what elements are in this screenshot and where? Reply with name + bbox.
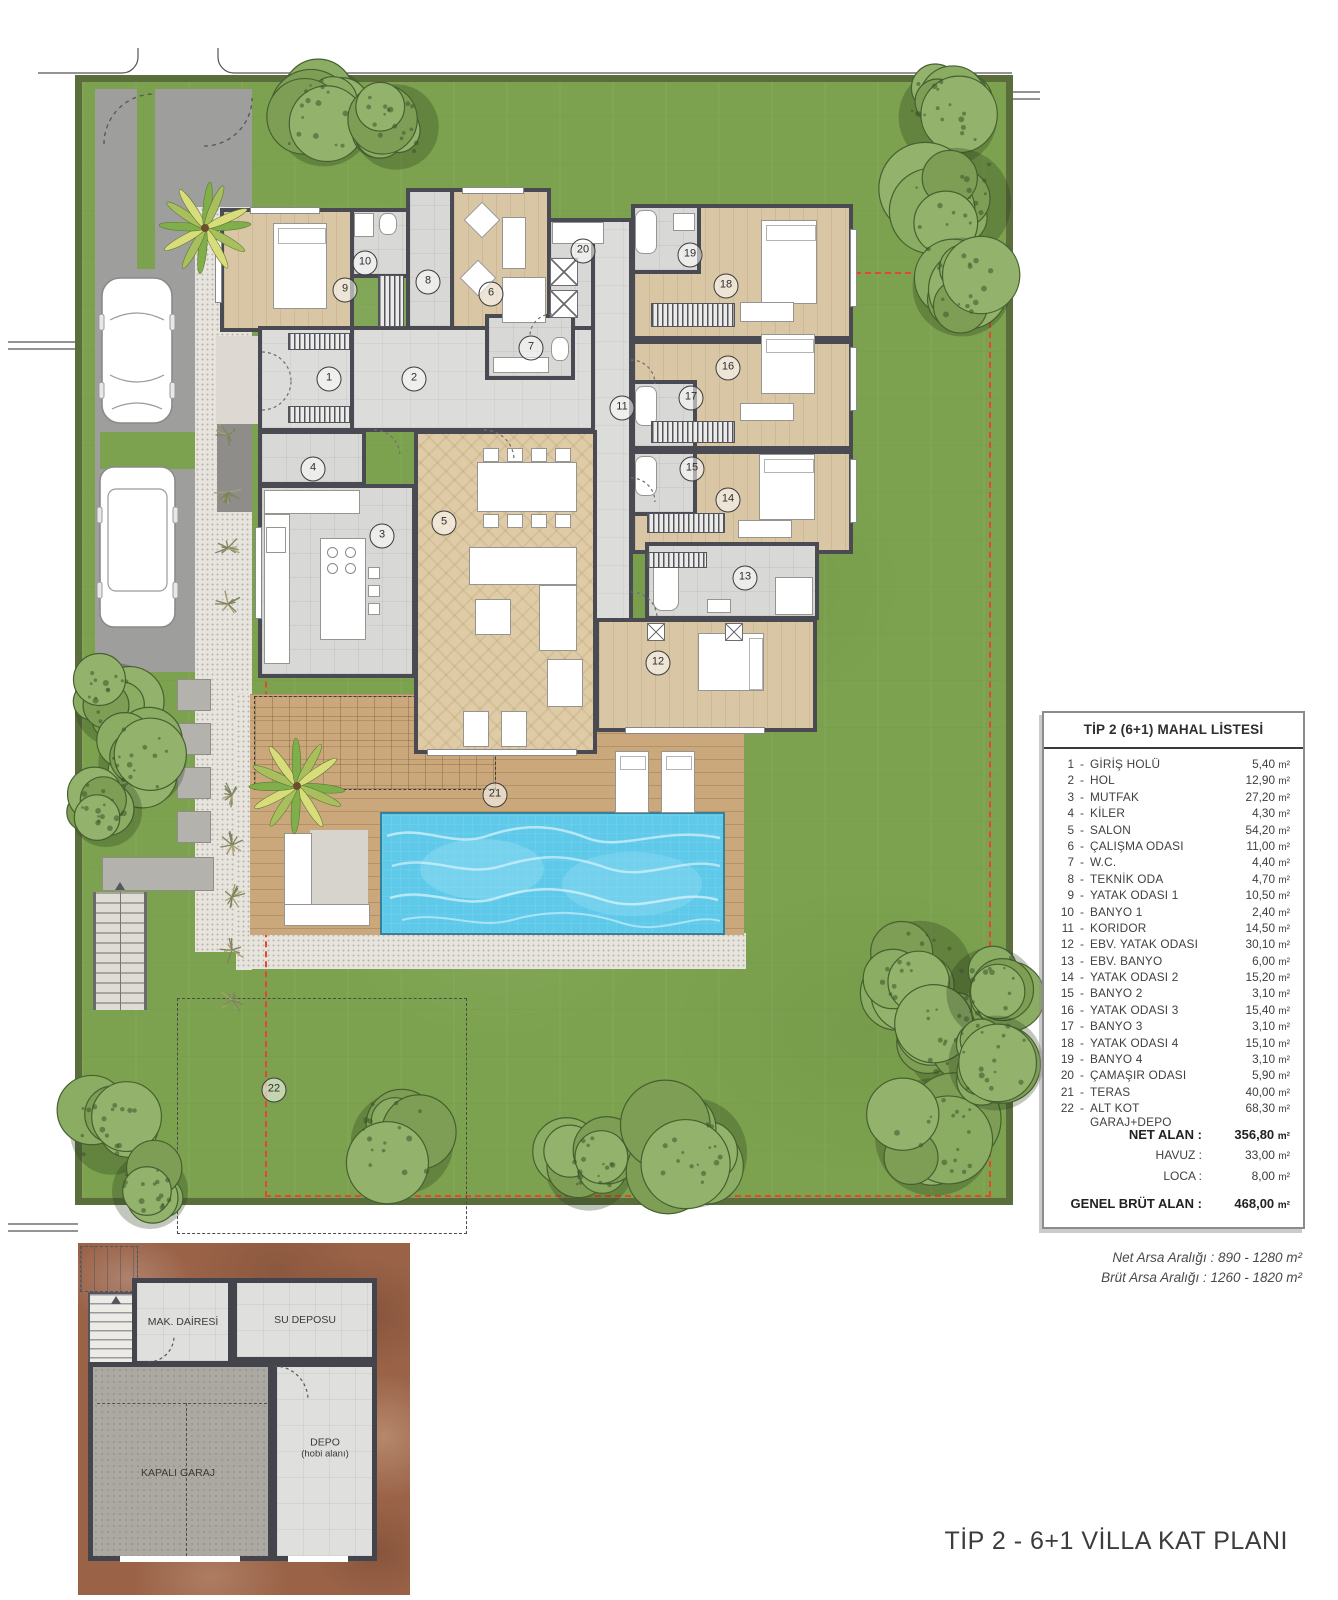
washer <box>550 258 578 286</box>
room-name: HOL <box>1090 773 1220 787</box>
room-area: 15,20 m² <box>1220 970 1303 984</box>
room-number: 4 <box>1044 806 1074 820</box>
room-area: 15,40 m² <box>1220 1003 1303 1017</box>
stepping-stone <box>177 811 211 843</box>
stool <box>368 585 380 597</box>
chair <box>555 448 571 462</box>
room-list-row: 12-EBV. YATAK ODASI30,10 m² <box>1044 937 1303 953</box>
room-badge: 1 <box>317 367 342 392</box>
gross-plot-range: Brüt Arsa Aralığı : 1260 - 1820 m² <box>990 1268 1302 1288</box>
room-badge: 14 <box>716 488 741 513</box>
dryer <box>550 290 578 318</box>
room-area: 5,90 m² <box>1220 1068 1303 1082</box>
stair-rail <box>120 892 121 1010</box>
room-name: EBV. BANYO <box>1090 954 1220 968</box>
room-name: YATAK ODASI 4 <box>1090 1036 1220 1050</box>
room-number: 2 <box>1044 773 1074 787</box>
room-list-row: 17-BANYO 33,10 m² <box>1044 1019 1303 1035</box>
room-name: GİRİŞ HOLÜ <box>1090 757 1220 771</box>
room-list-row: 5-SALON54,20 m² <box>1044 823 1303 839</box>
swimming-pool <box>380 812 725 935</box>
room-badge: 18 <box>714 274 739 299</box>
room-badge: 4 <box>301 457 326 482</box>
room-technical <box>406 188 454 330</box>
room-list-row: 16-YATAK ODASI 315,40 m² <box>1044 1003 1303 1019</box>
room-number: 6 <box>1044 839 1074 853</box>
driveway-apron <box>95 89 252 207</box>
site-plan: 12345678910111213141516171819202122 <box>75 75 1013 1205</box>
room-name: BANYO 4 <box>1090 1052 1220 1066</box>
kitchen-island <box>320 538 366 640</box>
sheet-title: TİP 2 - 6+1 VİLLA KAT PLANI <box>940 1527 1288 1556</box>
room-name: SALON <box>1090 823 1220 837</box>
room-number: 8 <box>1044 872 1074 886</box>
stair-direction-arrow <box>111 1296 121 1304</box>
sofa <box>469 547 577 585</box>
dash: - <box>1074 872 1090 886</box>
room-badge: 2 <box>402 367 427 392</box>
bathtub <box>635 210 657 254</box>
toilet <box>379 213 397 235</box>
loca-sofa <box>284 833 312 905</box>
stair-direction-arrow <box>115 882 125 890</box>
room-number: 5 <box>1044 823 1074 837</box>
room-number: 21 <box>1044 1085 1074 1099</box>
stepping-stone <box>177 679 211 711</box>
bathtub <box>635 456 657 496</box>
chair <box>507 448 523 462</box>
room-area: 54,20 m² <box>1220 823 1303 837</box>
room-number: 13 <box>1044 954 1074 968</box>
bed <box>759 454 815 520</box>
room-list-summary: NET ALAN :356,80 m²HAVUZ :33,00 m²LOCA :… <box>1044 1127 1303 1217</box>
summary-value: 33,00 m² <box>1212 1148 1303 1162</box>
entrance-porch <box>216 336 260 424</box>
storage-door-opening <box>288 1556 348 1562</box>
room-name: EBV. YATAK ODASI <box>1090 937 1220 951</box>
loca-pad <box>310 830 368 906</box>
window <box>462 187 524 194</box>
dash: - <box>1074 1068 1090 1082</box>
toilet <box>551 337 569 361</box>
dash: - <box>1074 970 1090 984</box>
room-list-row: 20-ÇAMAŞIR ODASI5,90 m² <box>1044 1068 1303 1084</box>
dash: - <box>1074 921 1090 935</box>
room-corridor <box>591 218 633 626</box>
room-area: 40,00 m² <box>1220 1085 1303 1099</box>
room-name: TERAS <box>1090 1085 1220 1099</box>
room-number: 17 <box>1044 1019 1074 1033</box>
room-number: 14 <box>1044 970 1074 984</box>
stool <box>368 567 380 579</box>
window <box>850 459 857 523</box>
underground-garage-outline <box>177 998 467 1234</box>
plot-range-notes: Net Arsa Aralığı : 890 - 1280 m² Brüt Ar… <box>990 1248 1302 1288</box>
room-area: 3,10 m² <box>1220 1052 1303 1066</box>
room-area: 5,40 m² <box>1220 757 1303 771</box>
chaise <box>547 659 583 707</box>
room-closed-garage <box>88 1362 273 1561</box>
room-area: 3,10 m² <box>1220 1019 1303 1033</box>
dash: - <box>1074 757 1090 771</box>
desk <box>740 403 794 421</box>
sink <box>707 599 731 613</box>
room-badge: 21 <box>483 783 508 808</box>
chair <box>483 514 499 528</box>
room-name: W.C. <box>1090 855 1220 869</box>
kitchen-sink <box>266 527 286 553</box>
room-badge: 16 <box>716 356 741 381</box>
room-badge: 3 <box>370 524 395 549</box>
summary-value: 8,00 m² <box>1212 1169 1303 1183</box>
label-machine-room: MAK. DAİRESİ <box>148 1316 219 1328</box>
dash: - <box>1074 790 1090 804</box>
room-number: 16 <box>1044 1003 1074 1017</box>
label-closed-garage: KAPALI GARAJ <box>141 1467 215 1479</box>
room-area: 11,00 m² <box>1220 839 1303 853</box>
window <box>215 239 222 303</box>
room-area: 27,20 m² <box>1220 790 1303 804</box>
dining-table <box>477 462 577 512</box>
room-name: KİLER <box>1090 806 1220 820</box>
window <box>427 749 577 756</box>
room-area: 15,10 m² <box>1220 1036 1303 1050</box>
room-list-row: 21-TERAS40,00 m² <box>1044 1085 1303 1101</box>
room-name: ÇALIŞMA ODASI <box>1090 839 1220 853</box>
room-list-row: 11-KORIDOR14,50 m² <box>1044 921 1303 937</box>
kitchen-counter <box>264 490 360 514</box>
driveway-green-median <box>137 89 155 269</box>
chair <box>483 448 499 462</box>
bed <box>698 633 764 691</box>
room-name: YATAK ODASI 1 <box>1090 888 1220 902</box>
wardrobe <box>651 303 735 327</box>
room-list-row: 7-W.C.4,40 m² <box>1044 855 1303 871</box>
nightstand <box>647 623 665 641</box>
room-number: 12 <box>1044 937 1074 951</box>
room-name: KORIDOR <box>1090 921 1220 935</box>
room-number: 22 <box>1044 1101 1074 1115</box>
summary-row: NET ALAN :356,80 m² <box>1044 1127 1303 1148</box>
dash: - <box>1074 1003 1090 1017</box>
desk <box>502 217 526 269</box>
room-badge: 6 <box>479 282 504 307</box>
room-list-row: 8-TEKNİK ODA4,70 m² <box>1044 872 1303 888</box>
dash: - <box>1074 905 1090 919</box>
dash: - <box>1074 937 1090 951</box>
bed <box>273 223 327 309</box>
exterior-stairs[interactable] <box>93 892 147 1010</box>
sink <box>673 213 695 231</box>
window <box>250 207 320 214</box>
room-list-row: 19-BANYO 43,10 m² <box>1044 1052 1303 1068</box>
room-list-row: 10-BANYO 12,40 m² <box>1044 905 1303 921</box>
dash: - <box>1074 773 1090 787</box>
sun-lounger <box>615 751 649 813</box>
room-number: 10 <box>1044 905 1074 919</box>
room-list-panel: TİP 2 (6+1) MAHAL LİSTESİ 1-GİRİŞ HOLÜ5,… <box>1042 711 1305 1229</box>
room-badge: 20 <box>571 239 596 264</box>
loca-sofa <box>284 904 370 926</box>
dash: - <box>1074 1019 1090 1033</box>
net-plot-range: Net Arsa Aralığı : 890 - 1280 m² <box>990 1248 1302 1268</box>
deck-chair <box>501 711 527 747</box>
summary-label: NET ALAN : <box>1044 1127 1212 1142</box>
chair <box>555 514 571 528</box>
garage-door-opening <box>120 1556 240 1562</box>
room-badge: 5 <box>432 511 457 536</box>
desk <box>740 302 794 322</box>
window <box>255 527 262 619</box>
sofa <box>539 585 577 651</box>
summary-row: HAVUZ :33,00 m² <box>1044 1148 1303 1169</box>
room-badge: 8 <box>416 270 441 295</box>
dash: - <box>1074 986 1090 1000</box>
bed <box>761 334 815 394</box>
deck-chair <box>463 711 489 747</box>
room-area: 30,10 m² <box>1220 937 1303 951</box>
chair <box>531 448 547 462</box>
room-badge: 9 <box>333 278 358 303</box>
wardrobe <box>651 421 735 443</box>
desk <box>738 520 792 538</box>
stepping-stone <box>177 767 211 799</box>
room-number: 7 <box>1044 855 1074 869</box>
room-name: BANYO 3 <box>1090 1019 1220 1033</box>
basement-plan: MAK. DAİRESİ SU DEPOSU KAPALI GARAJ DEPO… <box>78 1243 410 1595</box>
window <box>850 229 857 307</box>
dash: - <box>1074 1101 1090 1115</box>
room-badge: 7 <box>519 336 544 361</box>
summary-label: HAVUZ : <box>1044 1148 1212 1162</box>
room-list-title: TİP 2 (6+1) MAHAL LİSTESİ <box>1044 713 1303 749</box>
drawing-sheet: 12345678910111213141516171819202122 TİP … <box>0 0 1338 1600</box>
summary-row: GENEL BRÜT ALAN :468,00 m² <box>1044 1196 1303 1217</box>
room-area: 68,30 m² <box>1220 1101 1303 1115</box>
pool-water-highlights <box>382 814 727 937</box>
sun-lounger <box>661 751 695 813</box>
dash: - <box>1074 888 1090 902</box>
summary-value: 356,80 m² <box>1212 1127 1303 1142</box>
shower <box>775 577 813 615</box>
room-name: ÇAMAŞIR ODASI <box>1090 1068 1220 1082</box>
chair <box>507 514 523 528</box>
room-list-row: 2-HOL12,90 m² <box>1044 773 1303 789</box>
stool <box>368 603 380 615</box>
label-storage: DEPO (hobi alanı) <box>301 1437 349 1460</box>
room-area: 6,00 m² <box>1220 954 1303 968</box>
dash: - <box>1074 1085 1090 1099</box>
room-area: 4,70 m² <box>1220 872 1303 886</box>
shoe-cabinet <box>288 406 350 423</box>
room-number: 19 <box>1044 1052 1074 1066</box>
room-name: YATAK ODASI 2 <box>1090 970 1220 984</box>
dash: - <box>1074 855 1090 869</box>
room-list-row: 6-ÇALIŞMA ODASI11,00 m² <box>1044 839 1303 855</box>
dash: - <box>1074 1052 1090 1066</box>
room-list-row: 15-BANYO 23,10 m² <box>1044 986 1303 1002</box>
window <box>625 727 765 734</box>
bathtub <box>635 386 657 426</box>
room-name: BANYO 2 <box>1090 986 1220 1000</box>
room-area: 10,50 m² <box>1220 888 1303 902</box>
room-badge: 15 <box>680 457 705 482</box>
coffee-table <box>475 599 511 635</box>
room-number: 20 <box>1044 1068 1074 1082</box>
sink <box>354 213 374 237</box>
chair <box>531 514 547 528</box>
room-list-row: 4-KİLER4,30 m² <box>1044 806 1303 822</box>
dash: - <box>1074 1036 1090 1050</box>
wardrobe <box>647 552 707 568</box>
summary-label: GENEL BRÜT ALAN : <box>1044 1196 1212 1211</box>
parking-divider-grass <box>100 432 195 469</box>
room-area: 14,50 m² <box>1220 921 1303 935</box>
window <box>850 347 857 411</box>
room-badge: 11 <box>610 396 635 421</box>
garage-guide-line <box>97 1403 267 1404</box>
room-badge: 22 <box>262 1078 287 1103</box>
room-list-row: 1-GİRİŞ HOLÜ5,40 m² <box>1044 757 1303 773</box>
room-number: 3 <box>1044 790 1074 804</box>
garage-guide-line <box>186 1403 187 1556</box>
room-name: ALT KOT GARAJ+DEPO <box>1090 1101 1220 1129</box>
room-list-row: 9-YATAK ODASI 110,50 m² <box>1044 888 1303 904</box>
room-area: 4,30 m² <box>1220 806 1303 820</box>
room-list-row: 22-ALT KOT GARAJ+DEPO68,30 m² <box>1044 1101 1303 1117</box>
summary-value: 468,00 m² <box>1212 1196 1303 1211</box>
summary-label: LOCA : <box>1044 1169 1212 1183</box>
stepping-stone <box>177 723 211 755</box>
room-number: 18 <box>1044 1036 1074 1050</box>
room-area: 2,40 m² <box>1220 905 1303 919</box>
room-list-row: 13-EBV. BANYO6,00 m² <box>1044 954 1303 970</box>
room-name: BANYO 1 <box>1090 905 1220 919</box>
label-water-tank: SU DEPOSU <box>274 1314 336 1326</box>
vanity <box>493 357 549 373</box>
nightstand <box>725 623 743 641</box>
dash: - <box>1074 806 1090 820</box>
dash: - <box>1074 954 1090 968</box>
room-list-row: 18-YATAK ODASI 415,10 m² <box>1044 1036 1303 1052</box>
room-name: MUTFAK <box>1090 790 1220 804</box>
radiator <box>378 275 404 327</box>
room-area: 3,10 m² <box>1220 986 1303 1000</box>
room-storage <box>272 1362 377 1561</box>
room-badge: 17 <box>679 386 704 411</box>
stair-dashed-upper <box>80 1246 138 1292</box>
room-number: 1 <box>1044 757 1074 771</box>
room-badge: 13 <box>733 566 758 591</box>
room-area: 12,90 m² <box>1220 773 1303 787</box>
room-list-rows: 1-GİRİŞ HOLÜ5,40 m²2-HOL12,90 m²3-MUTFAK… <box>1044 749 1303 1118</box>
bed <box>761 220 817 304</box>
room-number: 15 <box>1044 986 1074 1000</box>
room-number: 11 <box>1044 921 1074 935</box>
room-name: TEKNİK ODA <box>1090 872 1220 886</box>
room-area: 4,40 m² <box>1220 855 1303 869</box>
dash: - <box>1074 823 1090 837</box>
room-list-row: 3-MUTFAK27,20 m² <box>1044 790 1303 806</box>
room-list-row: 14-YATAK ODASI 215,20 m² <box>1044 970 1303 986</box>
room-number: 9 <box>1044 888 1074 902</box>
room-badge: 19 <box>678 243 703 268</box>
room-badge: 10 <box>353 251 378 276</box>
room-name: YATAK ODASI 3 <box>1090 1003 1220 1017</box>
dash: - <box>1074 839 1090 853</box>
cabinet <box>502 277 546 323</box>
room-badge: 12 <box>646 651 671 676</box>
wardrobe <box>647 513 725 533</box>
summary-row: LOCA :8,00 m² <box>1044 1169 1303 1190</box>
shoe-cabinet <box>288 333 350 350</box>
